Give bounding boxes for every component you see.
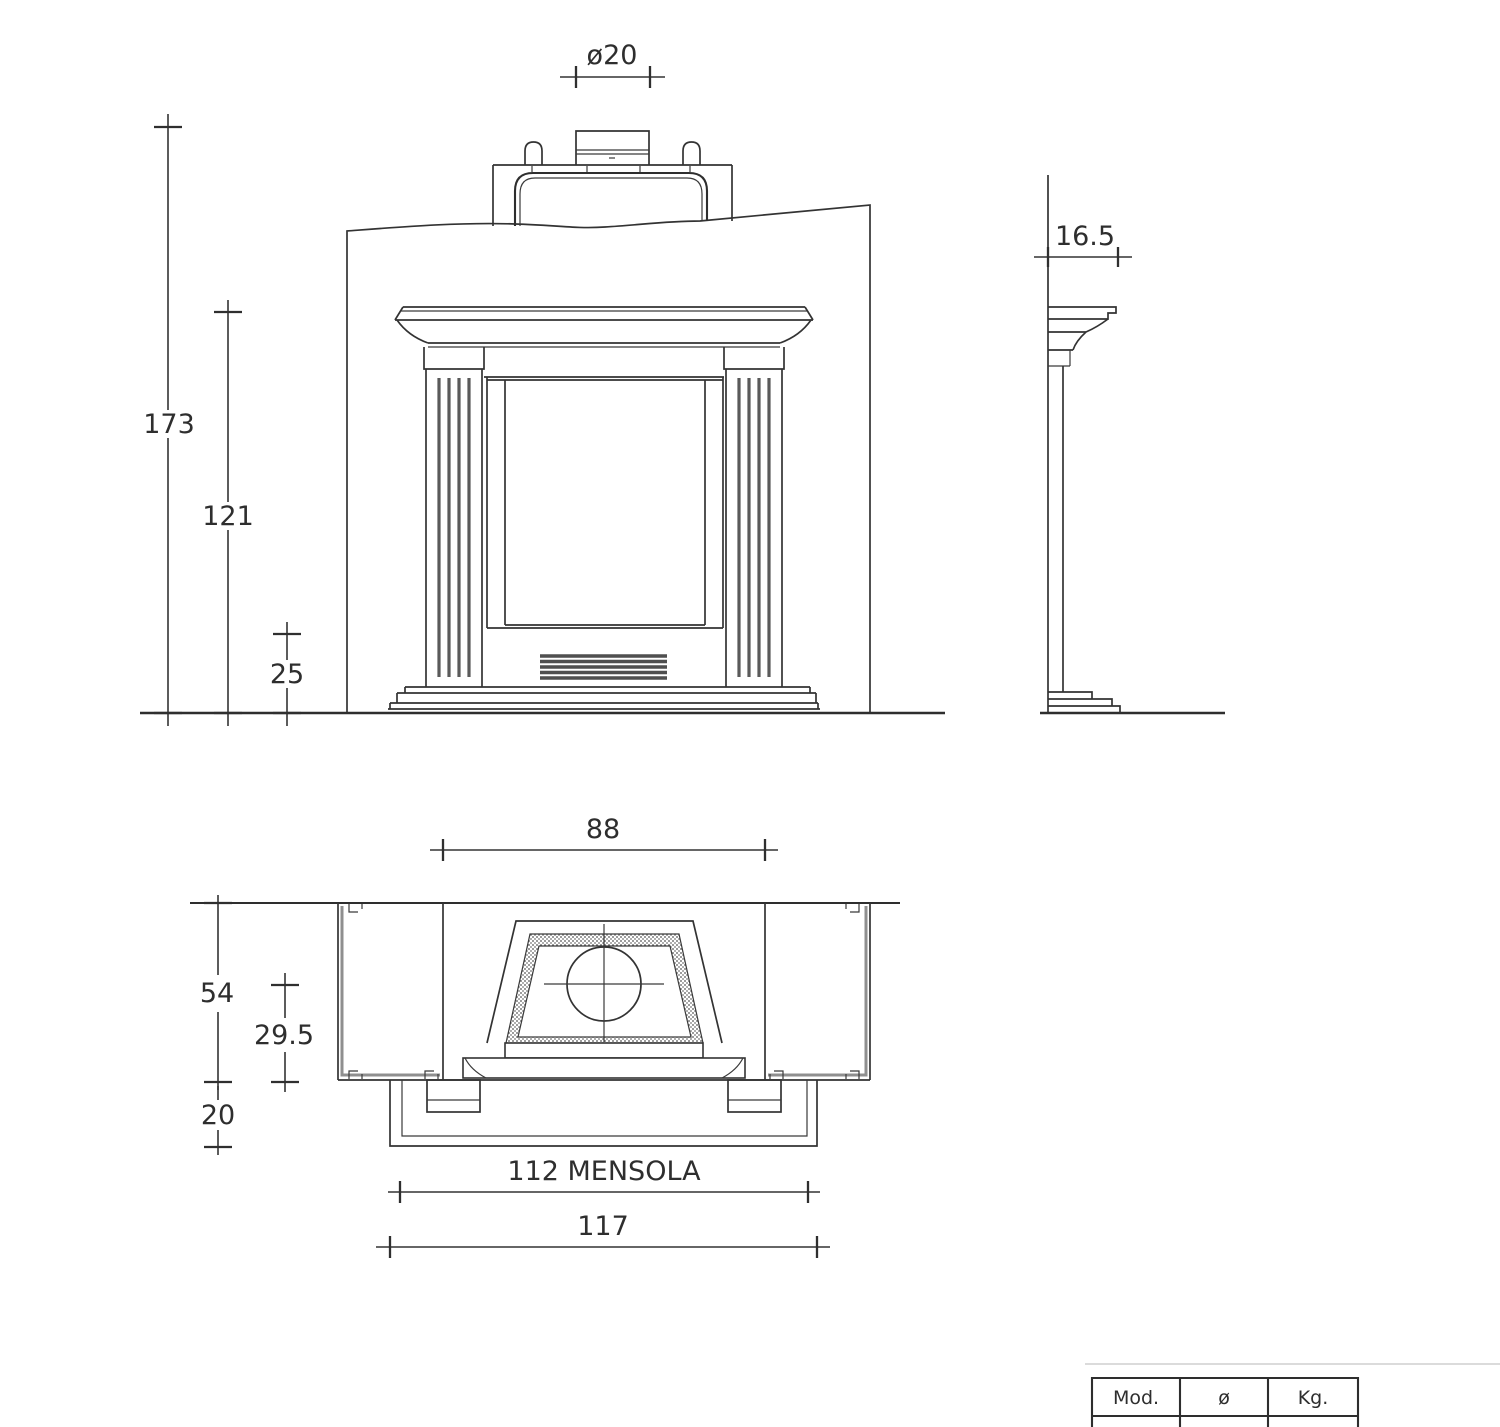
dimension-flue-center-depth: 29.5: [254, 973, 314, 1092]
stove-lug-right: [683, 142, 700, 165]
base-side-steps: [1048, 692, 1120, 713]
spec-table-header-diameter: ø: [1218, 1387, 1230, 1409]
pilaster-right: [726, 369, 782, 687]
dimension-overall-depth: 54: [200, 895, 234, 1090]
crown-molding-right: [780, 320, 811, 343]
dimension-overall-height: 173: [143, 114, 195, 726]
dimension-overall-width: 117: [376, 1211, 830, 1258]
side-profile-view: 16.5: [1034, 175, 1225, 713]
dimension-label-overall-height: 173: [143, 409, 195, 440]
flue-collar: [576, 131, 649, 165]
pilaster-capitals: [424, 347, 784, 377]
spec-table-header-mod: Mod.: [1113, 1387, 1159, 1409]
stove-insert: [493, 142, 732, 226]
dimension-label-flue-diameter: ø20: [587, 40, 638, 71]
hearth-step-outer: [463, 1058, 745, 1078]
firebox-opening-frame: [487, 377, 723, 628]
stove-door-outer: [515, 173, 707, 226]
fireplace-technical-drawing: ø20: [0, 0, 1500, 1427]
stove-lug-left: [525, 142, 542, 165]
plan-right-wall: [765, 903, 870, 1080]
firebox-plan: [463, 921, 745, 1078]
dimension-label-shelf-width: 112 MENSOLA: [507, 1156, 701, 1187]
ventilation-grille: [540, 656, 667, 678]
technical-drawing-sheet: ø20: [0, 0, 1500, 1427]
column-plinth-left-plan: [427, 1080, 480, 1112]
dimension-label-base-depth: 20: [201, 1100, 235, 1131]
mensola-outline: [390, 1080, 817, 1146]
dimension-label-opening-width: 88: [586, 814, 620, 845]
hearth-step-inner: [505, 1043, 703, 1058]
dimension-shelf-width: 112 MENSOLA: [388, 1156, 820, 1203]
plan-view: 88: [190, 814, 900, 1258]
dimension-label-flue-center-depth: 29.5: [254, 1020, 314, 1051]
dimension-label-side-overhang: 16.5: [1055, 221, 1115, 252]
dimension-label-hearth-height: 25: [270, 659, 304, 690]
front-elevation-view: ø20: [140, 40, 945, 726]
dimension-opening-width: 88: [430, 814, 778, 861]
dimension-flue-diameter: ø20: [560, 40, 665, 88]
spec-table-header-kg: Kg.: [1298, 1387, 1329, 1409]
dimension-label-mantel-height: 121: [202, 501, 254, 532]
crown-molding-left: [397, 320, 428, 343]
dimension-hearth-height: 25: [270, 622, 304, 726]
dimension-base-depth: 20: [201, 1086, 235, 1155]
mantel-side-profile: [1048, 307, 1120, 713]
base-plinth: [388, 687, 820, 709]
stove-door-inner: [520, 178, 702, 226]
column-plinth-right-plan: [728, 1080, 781, 1112]
dimension-label-overall-depth: 54: [200, 978, 234, 1009]
dimension-mantel-height: 121: [202, 300, 254, 726]
pilaster-left: [426, 369, 482, 687]
dimension-label-overall-width: 117: [577, 1211, 629, 1242]
plan-left-wall: [338, 903, 443, 1080]
spec-table: Mod. ø Kg.: [1085, 1364, 1500, 1427]
mantel-shelf: [395, 307, 813, 347]
